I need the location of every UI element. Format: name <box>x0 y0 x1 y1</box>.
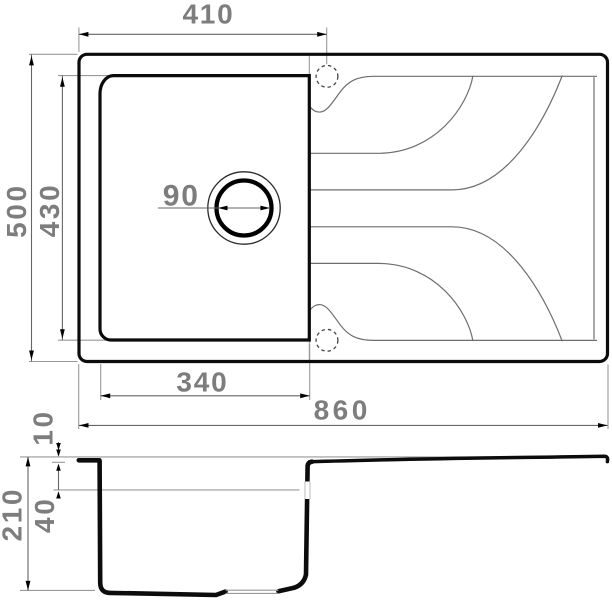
svg-text:500: 500 <box>1 183 32 238</box>
svg-text:40: 40 <box>29 497 60 533</box>
svg-text:340: 340 <box>176 366 228 397</box>
svg-text:410: 410 <box>182 0 234 30</box>
svg-text:90: 90 <box>163 179 200 212</box>
svg-text:10: 10 <box>28 409 59 445</box>
svg-text:860: 860 <box>314 395 371 426</box>
svg-text:430: 430 <box>34 183 65 238</box>
svg-text:210: 210 <box>0 487 27 542</box>
